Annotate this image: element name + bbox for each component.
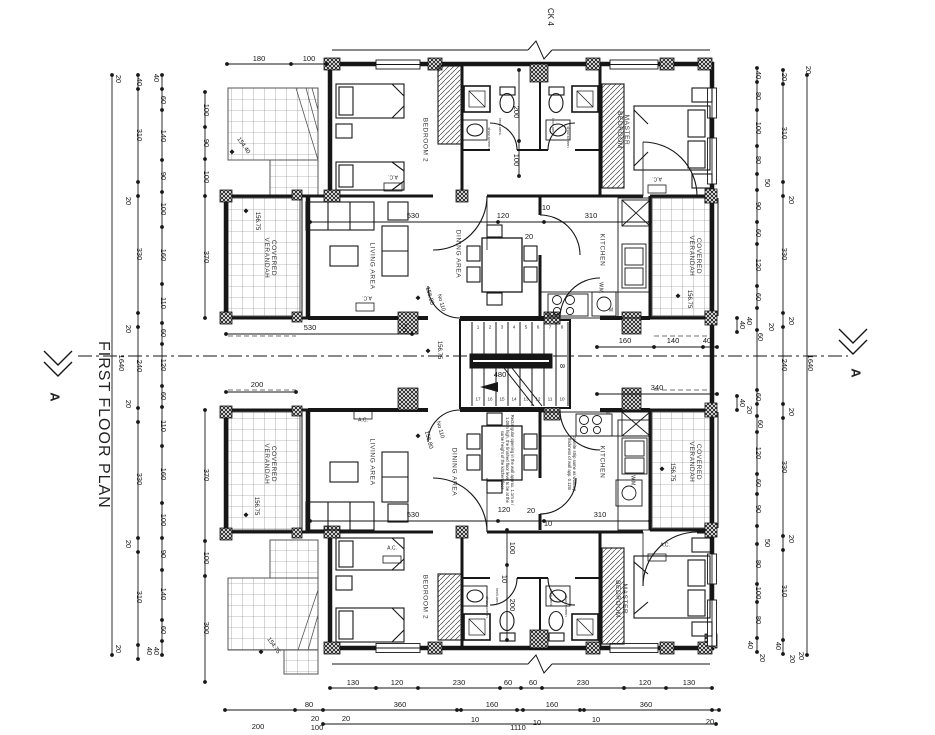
tiny-label: tech.vent. <box>551 118 555 135</box>
dim-label: 120 <box>754 447 762 460</box>
stair-step-number: 4 <box>513 326 516 331</box>
dim-label: 330 <box>135 248 143 261</box>
stair-step-number: 11 <box>548 398 553 403</box>
room-label: LIVING AREA <box>368 242 375 289</box>
room-label: COVERED VERANDAH <box>687 236 701 277</box>
lvl-label: 154.40 <box>235 137 251 156</box>
dim-label: 310 <box>585 212 598 220</box>
dim-label: 40 <box>738 399 746 407</box>
lvl-label: 156.75 <box>686 290 692 308</box>
dim-label: 140 <box>159 588 167 601</box>
dim-label: 40 <box>746 641 754 649</box>
stair-step-number: 10 <box>559 398 564 403</box>
section-marker-a-left: A <box>48 392 63 401</box>
dim-label: 130 <box>347 679 360 687</box>
dim-label: 10 <box>544 520 552 528</box>
fix-label: A.C. <box>388 173 398 178</box>
dim-label: 20 <box>124 197 132 205</box>
dim-label: 40 <box>774 642 782 650</box>
dim-label: 100 <box>202 171 210 184</box>
dim-label: 60 <box>504 679 512 687</box>
dim-label: 40 <box>738 321 746 329</box>
dim-label: 140 <box>159 130 167 143</box>
stair-step-number: 3 <box>501 326 504 331</box>
tiny-label: tech.vent. <box>498 118 502 135</box>
dim-label: 80 <box>754 156 762 164</box>
dim-label: 20 <box>787 535 795 543</box>
dim-label: 20 <box>342 715 350 723</box>
tiny-label: tech.vent. <box>549 589 553 606</box>
dim-label: 1640 <box>806 355 814 372</box>
dim-label: 340 <box>651 384 664 392</box>
dim-label: 100 <box>508 542 516 555</box>
dim-label: 60 <box>756 420 764 428</box>
dim-label: 330 <box>780 248 788 261</box>
dim-label: 60 <box>159 626 167 634</box>
room-label: COVERED VERANDAH <box>262 444 276 485</box>
dim-label: 100 <box>754 122 762 135</box>
dim-label: 20 <box>525 233 533 241</box>
tiny-label: tech.vent. <box>495 588 499 605</box>
room-label: COVERED VERANDAH <box>687 442 701 483</box>
dim-label: 530 <box>407 212 420 220</box>
dim-label: 20 <box>706 718 714 726</box>
dim-label: 100 <box>754 587 762 600</box>
dim-label: 60 <box>159 96 167 104</box>
dim-label: 60 <box>754 293 762 301</box>
dim-label: 200 <box>512 106 520 119</box>
fix-label: W.M. <box>597 282 602 293</box>
fix-label: M <box>609 308 613 313</box>
dim-label: 20 <box>804 66 812 74</box>
dim-label: 100 <box>159 203 167 216</box>
level-diamond-icon: ◆ <box>660 467 665 474</box>
dim-label: 10 <box>542 204 550 212</box>
dim-label: 120 <box>159 359 167 372</box>
dim-label: 40 <box>703 337 711 345</box>
dim-label: 50 <box>400 324 408 332</box>
room-label: BEDROOM 2 <box>421 118 428 162</box>
dim-label: 310 <box>135 129 143 142</box>
dim-label: 20 <box>527 507 535 515</box>
floor-plan-sheet: FIRST FLOOR PLAN CK 4 A A 20164020403102… <box>0 0 935 735</box>
dim-label: 60 <box>754 393 762 401</box>
dim-label: 20 <box>745 406 753 414</box>
dim-label: 20 <box>114 75 122 83</box>
dim-label: 40 <box>754 71 762 79</box>
plan-title: FIRST FLOOR PLAN <box>0 341 112 383</box>
dim-label: 50 <box>763 179 771 187</box>
stair-step-number: 2 <box>489 326 492 331</box>
dim-label: 530 <box>304 324 317 332</box>
dim-label: 60 <box>754 479 762 487</box>
dim-label: 360 <box>394 701 407 709</box>
tiny-label: shov.screen <box>566 126 570 147</box>
dim-label: 100 <box>303 55 316 63</box>
dim-label: 20 <box>767 323 775 331</box>
dim-label: 20 <box>787 408 795 416</box>
lvl-label: 156.75 <box>253 497 259 515</box>
dim-label: 230 <box>453 679 466 687</box>
dim-label: 20 <box>780 73 788 81</box>
dim-label: 40 <box>152 74 160 82</box>
room-label: DINING AREA <box>450 448 457 497</box>
dim-label: 60 <box>159 329 167 337</box>
dim-label: 480 <box>494 371 507 379</box>
stair-step-number: 12 <box>535 398 540 403</box>
dim-label: 230 <box>577 679 590 687</box>
room-label: LIVING AREA <box>368 438 375 485</box>
dim-label: 160 <box>619 337 632 345</box>
level-diamond-icon: ◆ <box>244 513 249 520</box>
dim-label: 8 <box>558 364 566 368</box>
fix-label: A.C. <box>358 418 368 423</box>
lvl-label: 156.80 <box>424 286 435 305</box>
dim-label: 20 <box>124 540 132 548</box>
dim-label: 80 <box>305 701 313 709</box>
tiny-label: shov.screen <box>485 596 489 617</box>
dim-label: 330 <box>135 473 143 486</box>
room-label: BEDROOM 2 <box>421 575 428 619</box>
dim-label: 120 <box>754 259 762 272</box>
dim-label: 160 <box>486 701 499 709</box>
dim-label: 80 <box>754 92 762 100</box>
dim-label: 60 <box>756 333 764 341</box>
lvl-label: 156.80 <box>423 430 434 449</box>
dim-label: 90 <box>159 172 167 180</box>
dim-label: 80 <box>754 560 762 568</box>
section-marker-a-right: A <box>849 368 864 377</box>
dim-label: 90 <box>754 202 762 210</box>
grid-marker-label: CK 4 <box>546 8 555 26</box>
dim-label: 40 <box>152 647 160 655</box>
dim-label: 40 <box>135 78 143 86</box>
fix-label: M <box>606 410 610 415</box>
stair-step-number: 8 <box>561 326 564 331</box>
dim-label: 20 <box>114 645 122 653</box>
dim-label: 90 <box>159 550 167 558</box>
dim-label: 80 <box>754 616 762 624</box>
dim-label: 20 <box>787 196 795 204</box>
fix-label: A.C. <box>660 543 670 548</box>
level-diamond-icon: ◆ <box>259 650 264 657</box>
dim-label: 160 <box>546 701 559 709</box>
dim-label: 90 <box>754 505 762 513</box>
dim-label: 360 <box>640 701 653 709</box>
level-diamond-icon: ◆ <box>416 434 421 441</box>
dim-label: 10 <box>533 719 541 727</box>
dim-label: 140 <box>667 337 680 345</box>
dim-label: 20 <box>758 654 766 662</box>
level-diamond-icon: ◆ <box>416 296 421 303</box>
dim-label: 20 <box>787 317 795 325</box>
dim-label: 310 <box>594 511 607 519</box>
dim-label: 60 <box>754 229 762 237</box>
dim-label: 1110 <box>510 724 526 732</box>
fix-label: A.C. <box>652 175 662 180</box>
lvl-label: 156.75 <box>669 463 675 481</box>
lvl-label: No 110 <box>434 421 444 439</box>
dim-label: 310 <box>780 585 788 598</box>
note-label: Granite strip same as worktop, thickness… <box>566 428 576 500</box>
dim-label: 100 <box>311 724 324 732</box>
stair-step-number: 13 <box>523 398 528 403</box>
fix-label: W.M. <box>629 475 634 486</box>
dim-label: 120 <box>391 679 404 687</box>
lvl-label: No 110 <box>435 294 445 312</box>
stair-step-number: 17 <box>475 398 480 403</box>
dim-label: 200 <box>508 599 516 612</box>
room-label: COVERED VERANDAH <box>262 238 276 279</box>
fix-label: A.C. <box>387 546 397 551</box>
room-label: DINING AREA <box>454 230 461 279</box>
dim-label: 110 <box>159 420 167 432</box>
dim-label: 180 <box>253 55 266 63</box>
dim-label: 160 <box>159 468 167 481</box>
room-label: KITCHEN <box>598 446 605 479</box>
stair-step-number: 6 <box>537 326 540 331</box>
dim-label: 50 <box>763 539 771 547</box>
dim-label: 200 <box>252 723 265 731</box>
dim-label: 90 <box>202 139 210 147</box>
dim-label: 120 <box>639 679 652 687</box>
dim-label: 10 <box>592 716 600 724</box>
stair-step-number: 15 <box>499 398 504 403</box>
dim-label: 100 <box>202 552 210 565</box>
dim-label: 310 <box>135 591 143 604</box>
dim-label: 1640 <box>117 355 125 372</box>
dim-label: 100 <box>159 514 167 527</box>
fix-label: A.C. <box>362 294 372 299</box>
stair-step-number: 5 <box>525 326 528 331</box>
dim-label: 160 <box>159 249 167 262</box>
dim-label: 60 <box>159 392 167 400</box>
level-diamond-icon: ◆ <box>230 150 235 157</box>
room-label: KITCHEN <box>598 234 605 267</box>
dim-label: 310 <box>780 127 788 140</box>
dim-label: 60 <box>529 679 537 687</box>
level-diamond-icon: ◆ <box>426 349 431 356</box>
dim-label: 120 <box>497 212 510 220</box>
dim-label: 530 <box>407 511 420 519</box>
dim-label: 240 <box>780 359 788 372</box>
dim-label: 370 <box>202 469 210 482</box>
labels-layer: FIRST FLOOR PLAN CK 4 A A 20164020403102… <box>0 0 935 735</box>
stair-step-number: 7 <box>549 326 552 331</box>
lvl-label: 156.75 <box>254 212 260 230</box>
lvl-label: 154.75 <box>265 637 281 656</box>
room-label: MASTER BEDROOM <box>613 580 627 618</box>
dim-label: 100 <box>202 104 210 117</box>
tiny-label: shov.screen <box>487 127 491 148</box>
dim-label: 110 <box>159 297 167 309</box>
lvl-label: 156.75 <box>436 341 442 359</box>
stair-step-number: 14 <box>511 398 516 403</box>
level-diamond-icon: ◆ <box>244 209 249 216</box>
dim-label: 20 <box>788 655 796 663</box>
dim-label: 10 <box>500 575 508 583</box>
level-diamond-icon: ◆ <box>676 294 681 301</box>
dim-label: 10 <box>471 716 479 724</box>
dim-label: 20 <box>124 400 132 408</box>
room-label: MASTER BEDROOM <box>615 111 629 149</box>
dim-label: 20 <box>311 715 319 723</box>
dim-label: 100 <box>512 154 520 167</box>
tiny-label: shov.screen <box>564 595 568 616</box>
dim-label: 370 <box>202 251 210 264</box>
dim-label: 330 <box>780 461 788 474</box>
dim-label: 300 <box>202 622 210 635</box>
note-label: Rectangular opening in the wall approx. … <box>500 413 514 508</box>
stair-step-number: 16 <box>487 398 492 403</box>
stair-step-number: 1 <box>477 326 480 331</box>
dim-label: 240 <box>135 360 143 373</box>
dim-label: 20 <box>124 325 132 333</box>
dim-label: 130 <box>683 679 696 687</box>
dim-label: 200 <box>251 381 264 389</box>
dim-label: 20 <box>797 652 805 660</box>
